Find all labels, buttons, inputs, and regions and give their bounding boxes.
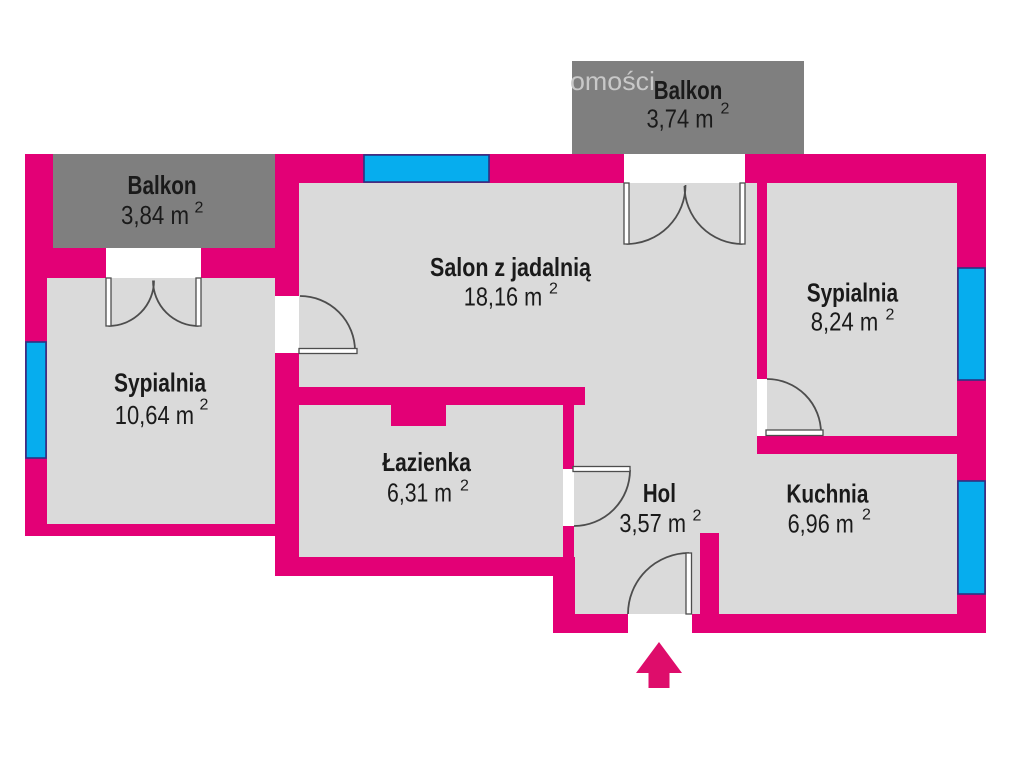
svg-text:omości: omości [570,66,655,96]
svg-text:6,31 m: 6,31 m [387,478,452,508]
svg-text:Łazienka: Łazienka [382,447,471,477]
svg-text:2: 2 [721,101,730,118]
svg-text:2: 2 [693,508,702,525]
svg-text:2: 2 [549,281,558,298]
svg-text:Salon z jadalnią: Salon z jadalnią [430,252,591,282]
svg-text:2: 2 [460,478,469,495]
svg-text:Sypialnia: Sypialnia [807,278,899,308]
svg-text:2: 2 [886,307,895,324]
svg-text:Hol: Hol [643,478,676,508]
svg-text:10,64 m: 10,64 m [115,400,194,430]
svg-text:Kuchnia: Kuchnia [786,479,868,509]
svg-text:Balkon: Balkon [128,170,197,200]
svg-text:3,74 m: 3,74 m [647,104,714,134]
svg-text:2: 2 [195,200,204,217]
svg-text:2: 2 [200,397,209,414]
svg-text:Sypialnia: Sypialnia [114,368,206,398]
svg-text:Balkon: Balkon [654,75,723,105]
svg-text:3,57 m: 3,57 m [619,508,686,538]
svg-text:18,16 m: 18,16 m [464,282,543,312]
svg-text:2: 2 [862,507,871,524]
svg-text:6,96 m: 6,96 m [788,509,854,539]
svg-text:8,24 m: 8,24 m [811,307,878,337]
svg-text:3,84 m: 3,84 m [121,200,189,230]
